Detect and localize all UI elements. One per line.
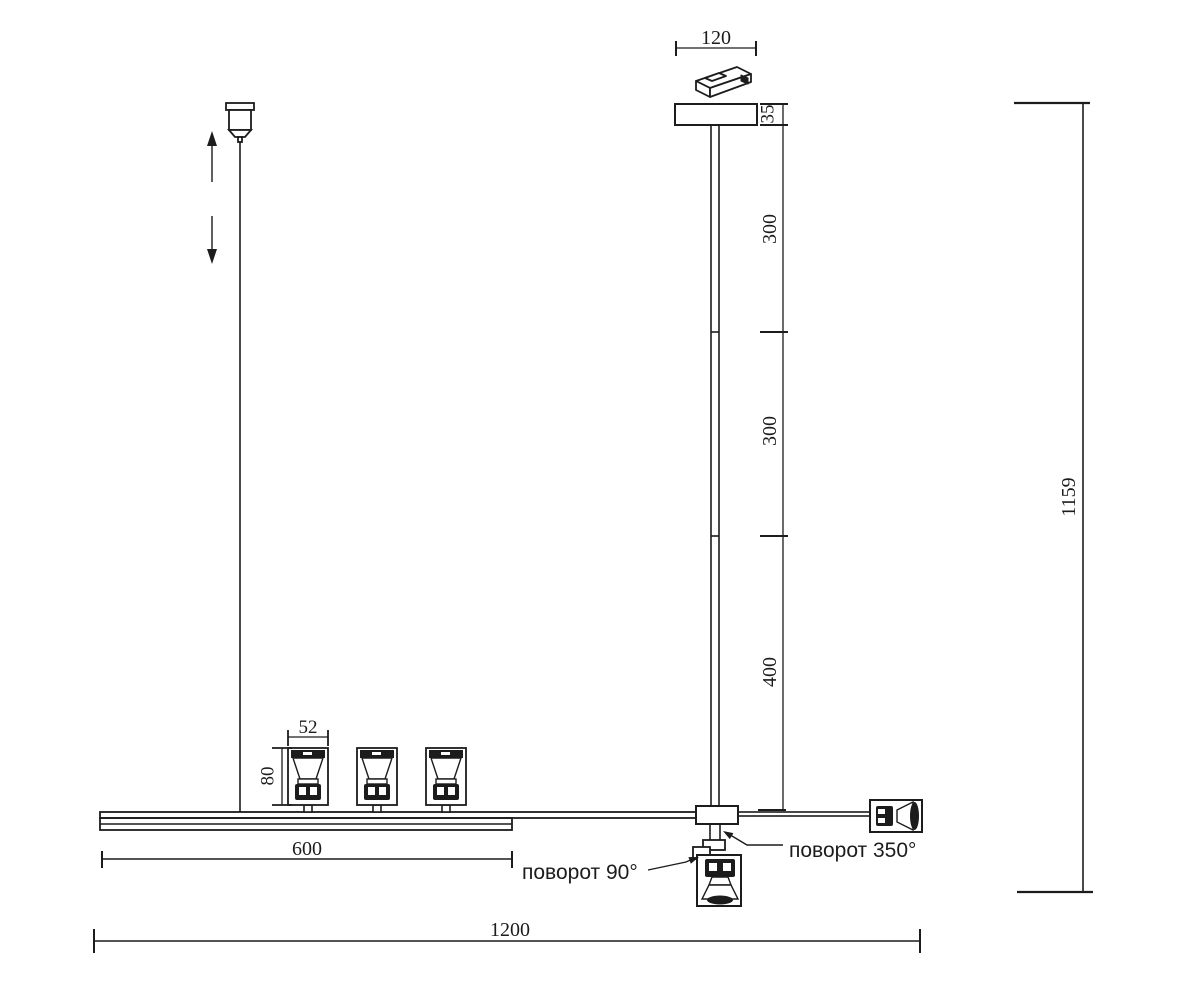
dim-text-600: 600 — [292, 838, 322, 860]
technical-drawing-canvas: 120 35 300 300 400 1159 — [0, 0, 1200, 1000]
down-spot-neck — [709, 877, 731, 885]
spot1-socket — [295, 784, 321, 800]
dim-text-300-upper: 300 — [759, 214, 781, 244]
dim-text-1159: 1159 — [1058, 477, 1080, 516]
canopy — [675, 104, 757, 125]
dim-text-300-middle: 300 — [759, 416, 781, 446]
dim-canopy-width: 120 — [676, 27, 756, 56]
down-spot-pin-left — [709, 863, 717, 871]
spotlight-1 — [288, 748, 328, 812]
spotlight-2 — [357, 748, 397, 812]
right-spot-pin-bottom — [878, 818, 885, 823]
spot2-stem — [373, 805, 381, 812]
dim-overall-height: 1159 — [1014, 103, 1093, 892]
leader-arrow-350-icon — [723, 831, 733, 839]
gripper-cap — [226, 103, 254, 110]
dim-overall-length: 1200 — [94, 919, 920, 953]
spot2-pin-right — [379, 787, 386, 795]
spot3-pin-left — [437, 787, 444, 795]
spot1-neck — [298, 779, 318, 784]
leader-line-90 — [648, 858, 695, 870]
right-spotlight — [870, 800, 922, 832]
track-bar-left — [100, 812, 696, 818]
spot3-pin-right — [448, 787, 455, 795]
dim-text-35: 35 — [758, 105, 779, 124]
leader-line-350 — [727, 833, 783, 845]
drawing-svg: 120 35 300 300 400 1159 — [0, 0, 1200, 1000]
gripper-stem — [238, 137, 242, 142]
annotation-rotation-90: поворот 90° — [522, 857, 699, 884]
suspension-rod — [711, 125, 719, 806]
dim-text-1200: 1200 — [490, 919, 530, 941]
down-spot-pin-right — [723, 863, 731, 871]
spot2-lens-highlight — [372, 752, 381, 755]
spot3-neck — [436, 779, 456, 784]
cable-gripper — [226, 103, 254, 142]
dim-spot-height: 80 — [258, 748, 293, 805]
spot2-pin-left — [368, 787, 375, 795]
junction-box — [696, 806, 738, 824]
down-arrow-icon — [207, 249, 217, 264]
dim-text-400: 400 — [759, 657, 781, 687]
label-rotation-350: поворот 350° — [789, 839, 916, 862]
right-spot-lens — [910, 802, 919, 830]
spotlight-3 — [426, 748, 466, 812]
spot2-socket — [364, 784, 390, 800]
spot3-socket — [433, 784, 459, 800]
spot1-stem — [304, 805, 312, 812]
gripper-body — [229, 110, 251, 130]
spot1-pin-right — [310, 787, 317, 795]
spot1-pin-left — [299, 787, 306, 795]
up-arrow-icon — [207, 131, 217, 146]
height-adjust-arrows — [207, 131, 217, 264]
dim-track-segment: 600 — [102, 838, 512, 868]
spot2-neck — [367, 779, 387, 784]
ceiling-connector-3d-icon — [696, 67, 751, 97]
down-spotlight — [693, 840, 741, 906]
down-spot-lens — [707, 896, 733, 905]
annotation-rotation-350: поворот 350° — [723, 831, 916, 862]
dim-chain-rod: 35 300 300 400 — [758, 104, 789, 810]
track-bar-right — [738, 812, 870, 816]
label-rotation-90: поворот 90° — [522, 861, 638, 884]
track — [100, 812, 870, 830]
spot3-stem — [442, 805, 450, 812]
dim-spot-width: 52 — [288, 717, 328, 746]
dim-text-52: 52 — [299, 717, 318, 738]
dim-text-80: 80 — [258, 767, 279, 786]
spot1-lens-highlight — [303, 752, 312, 755]
dim-text-120: 120 — [701, 27, 731, 49]
gripper-taper — [229, 130, 251, 137]
spot3-lens-highlight — [441, 752, 450, 755]
right-spot-pin-top — [878, 809, 885, 814]
